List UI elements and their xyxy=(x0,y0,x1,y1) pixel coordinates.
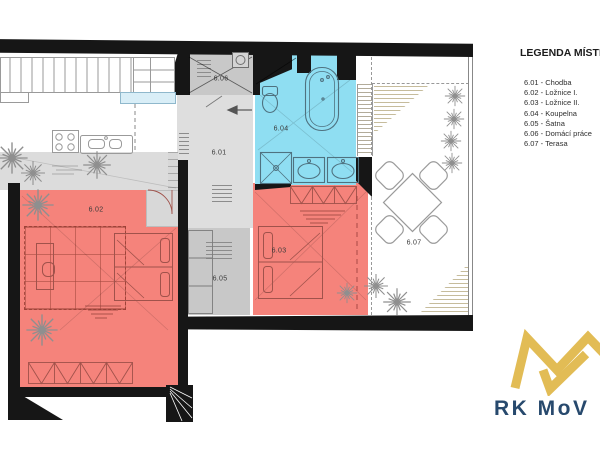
wall-bathroom-tooth-mid xyxy=(297,50,311,73)
headroom-hatch-hallway-a xyxy=(179,133,189,155)
legend-entry-bedroom-2: 6.03 - Ložnice II. xyxy=(524,98,592,108)
stair-fan-block xyxy=(166,385,193,422)
wall-bathroom-tooth-right xyxy=(337,50,356,80)
wall-bottom-bedroom-1 xyxy=(8,387,170,397)
door-landing-tiles xyxy=(146,190,180,227)
room-label-hallway: 6.01 xyxy=(212,150,227,157)
headroom-hatch-hallway-b xyxy=(212,185,232,203)
legend-entry-closet: 6.05 - Šatna xyxy=(524,119,592,129)
room-label-bedroom-1: 6.02 xyxy=(89,207,104,214)
brand-logo-text: RK MoV xyxy=(494,397,590,421)
terrace-border-top-dashed xyxy=(372,83,469,84)
roof-band-top xyxy=(0,37,473,58)
terrace-border-right xyxy=(468,55,473,315)
room-label-closet: 6.05 xyxy=(213,276,228,283)
wall-left-of-utility xyxy=(174,50,190,95)
legend-entry-bedroom-1: 6.02 - Ložnice I. xyxy=(524,88,592,98)
gallery-edge-strip xyxy=(168,152,178,192)
brand-logo-mark-icon xyxy=(502,326,600,396)
room-label-utility: 6.06 xyxy=(214,76,229,83)
room-label-bedroom-2: 6.03 xyxy=(272,248,287,255)
room-label-terrace: 6.07 xyxy=(407,240,422,247)
floor-plan-page: 6.02 6.03 6.04 6.01 6.05 6.06 6.07 LEGEN… xyxy=(0,0,600,450)
headroom-hatch-closet xyxy=(206,242,232,261)
wall-bottom-band xyxy=(186,315,473,331)
skylight-projection-grid xyxy=(24,226,126,310)
legend-entry-terrace: 6.07 - Terasa xyxy=(524,139,592,149)
legend-entry-hallway: 6.01 - Chodba xyxy=(524,78,592,88)
room-bedroom-2 xyxy=(253,183,368,315)
headroom-hatch-utility xyxy=(197,60,211,80)
legend: 6.01 - Chodba 6.02 - Ložnice I. 6.03 - L… xyxy=(524,78,592,149)
wall-left-bottom-wedge xyxy=(18,393,63,420)
legend-entry-utility: 6.06 - Domácí práce xyxy=(524,129,592,139)
room-label-bathroom: 6.04 xyxy=(274,126,289,133)
wall-left-bedroom-1 xyxy=(8,183,20,420)
void-garden-band xyxy=(0,152,178,190)
legend-entry-bathroom: 6.04 - Koupelna xyxy=(524,109,592,119)
wall-vertical-main xyxy=(178,160,188,388)
legend-title: LEGENDA MÍSTNO xyxy=(520,47,600,59)
